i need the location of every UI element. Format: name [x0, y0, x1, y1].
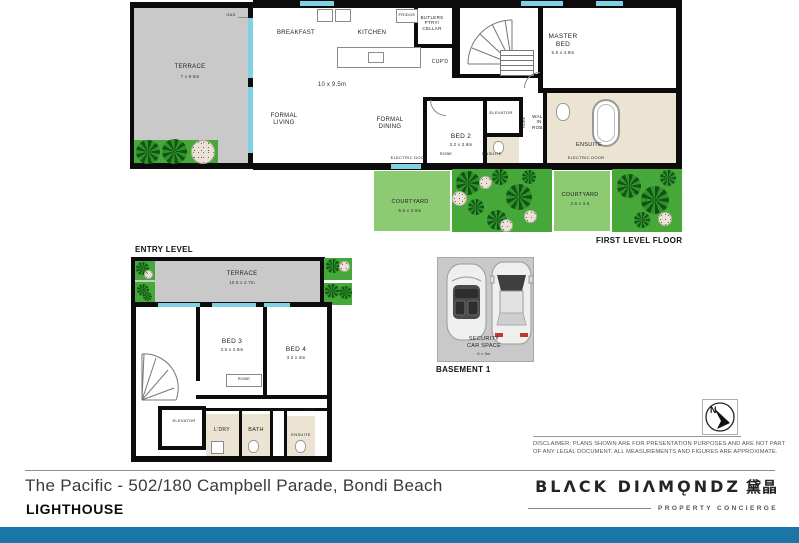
car-icon	[490, 261, 533, 345]
master-bed-dim: 5.5 x 4.8m	[551, 50, 574, 55]
car-icon	[444, 263, 489, 341]
tree-icon	[522, 170, 536, 184]
bed4-dim: 3.2 x 3m	[287, 355, 306, 360]
shrub-icon	[658, 212, 672, 226]
shrub-icon	[479, 176, 492, 189]
ensuite-label: ENSUITE	[482, 152, 501, 157]
terrace-dim: 10.5 x 2.7m	[229, 280, 255, 285]
tree-icon	[660, 170, 676, 186]
bed2-dim: 3.2 x 3.8m	[449, 142, 472, 147]
disclaimer-line1: DISCLAIMER: PLANS SHOWN ARE FOR PRESENTA…	[533, 441, 785, 449]
wall	[196, 307, 200, 381]
robe-label: ROBE	[260, 408, 271, 412]
shrub-icon	[144, 270, 153, 279]
tree-icon	[326, 259, 340, 273]
formal-living-label: FORMAL LIVING	[266, 113, 302, 127]
ensuite-label: ENSUITE	[576, 142, 602, 149]
tree-icon	[641, 186, 669, 214]
floorplan-page: { "first_level": { "caption": "FIRST LEV…	[0, 0, 799, 543]
shrub-icon	[524, 210, 537, 223]
window	[521, 1, 563, 6]
compass-north: N	[710, 405, 717, 415]
sink-icon	[368, 52, 384, 63]
wall	[196, 395, 331, 399]
bed4-label: BED 4	[286, 346, 306, 354]
tree-icon	[506, 184, 532, 210]
elevator-label: ELEVATOR	[172, 419, 195, 424]
tree-icon	[136, 140, 160, 164]
car-space-dim: 6 x 5m	[477, 351, 490, 356]
open-plan-dim: 10 x 9.5m	[318, 82, 346, 88]
brand-name: BLΛCK DIΛMǪNDZ	[535, 477, 741, 496]
elevator-label: ELEVATOR	[489, 111, 512, 116]
shrub-icon	[452, 191, 467, 206]
window	[596, 1, 623, 6]
first-level-caption: FIRST LEVEL FLOOR	[596, 236, 682, 245]
formal-dining-label: FORMAL DINING	[372, 117, 408, 131]
robe-label: ROBE	[303, 408, 314, 412]
wall	[327, 302, 332, 462]
ensuite-label: ENSUITE	[291, 433, 310, 438]
tree-icon	[325, 284, 339, 298]
footer-divider	[25, 470, 775, 471]
robe-label: ROBE	[522, 117, 526, 128]
stairs-steps	[500, 50, 534, 76]
terrace-floor	[135, 261, 320, 302]
master-bed-label: MASTER BED	[545, 33, 581, 49]
wall	[248, 8, 253, 18]
bath-label: BATH	[248, 427, 263, 434]
footer-accent-bar	[0, 527, 799, 543]
window	[158, 303, 200, 307]
robe-label: ROBE	[277, 408, 288, 412]
courtyard-dim: 2.6 x 3.6	[570, 201, 589, 206]
shrub-icon	[500, 219, 513, 232]
disclaimer-line2: OF ANY LEGAL DOCUMENT. ALL MEASUREMENTS …	[533, 449, 778, 457]
tree-icon	[143, 292, 152, 301]
toilet-icon	[556, 103, 570, 121]
wall	[676, 0, 682, 170]
basement-caption: BASEMENT 1	[436, 365, 491, 374]
tree-icon	[634, 212, 650, 228]
terrace-label: TERRACE	[175, 64, 206, 71]
robe-label: ROBE	[238, 377, 251, 382]
tagline-rule	[528, 508, 651, 509]
toilet-icon	[295, 440, 306, 453]
wall	[158, 406, 162, 450]
window	[212, 303, 256, 307]
electric-door-label: ELECTRIC DOOR	[391, 156, 428, 161]
butlers-label: BUTLERS PTRY/ CELLAR	[418, 15, 446, 31]
tree-icon	[468, 199, 484, 215]
tree-icon	[339, 286, 352, 299]
brand-tagline: PROPERTY CONCIERGE	[658, 505, 778, 512]
bed2-label: BED 2	[451, 133, 471, 141]
oven-icon	[317, 9, 333, 22]
car-space-label: SECURITY CAR SPACE	[463, 336, 505, 349]
electric-door-label: ELECTRIC DOOR	[568, 156, 605, 161]
robe-label: ROBE	[440, 152, 453, 157]
window	[391, 164, 421, 169]
wall	[423, 97, 427, 163]
window	[264, 303, 290, 307]
washer-icon	[211, 441, 224, 454]
terrace-dim: 7 x 9.5m	[181, 74, 200, 79]
spiral-stairs-icon	[136, 350, 180, 404]
wall	[248, 78, 253, 87]
tree-icon	[162, 139, 187, 164]
entry-level-caption: ENTRY LEVEL	[135, 245, 193, 254]
wall	[131, 456, 332, 462]
brand-logo: BLΛCK DIΛMǪNDZ黛晶	[528, 476, 778, 497]
wall	[248, 153, 253, 163]
toilet-icon	[248, 440, 259, 453]
property-subtitle: LIGHTHOUSE	[26, 501, 124, 517]
cupd-label: CUP'D	[432, 59, 449, 65]
bed3-dim: 3.5 x 2.8m	[220, 347, 243, 352]
window	[300, 1, 334, 6]
brand-tagline-row: PROPERTY CONCIERGE	[528, 505, 778, 512]
gas-label: GAS	[226, 13, 235, 18]
courtyard-label: COURTYARD	[391, 199, 428, 206]
oven-icon	[335, 9, 351, 22]
property-address: The Pacific - 502/180 Campbell Parade, B…	[25, 476, 443, 496]
gas-line	[238, 17, 248, 18]
bed3-label: BED 3	[222, 338, 242, 346]
wall	[487, 97, 523, 101]
wall	[270, 411, 273, 458]
wall	[263, 307, 267, 395]
fridge-label: FRIDGE	[399, 13, 416, 18]
courtyard-label: COURTYARD	[561, 192, 598, 199]
kitchen-label: KITCHEN	[358, 30, 386, 37]
tree-icon	[617, 174, 641, 198]
wall	[158, 406, 206, 410]
door-arc	[430, 100, 446, 116]
shrub-icon	[191, 140, 215, 164]
tree-icon	[492, 169, 508, 185]
courtyard-dim: 5.5 x 3.6m	[398, 208, 421, 213]
laundry-label: L'DRY	[214, 427, 230, 433]
bathtub-icon	[592, 99, 620, 147]
walk-in-robe-label: WALK IN ROBE	[530, 114, 548, 130]
breakfast-label: BREAKFAST	[277, 30, 315, 37]
terrace-label: TERRACE	[227, 271, 258, 278]
compass-icon: N	[702, 399, 738, 435]
disclaimer-divider	[533, 436, 741, 437]
wall	[158, 446, 206, 450]
shrub-icon	[339, 261, 350, 272]
brand-chinese: 黛晶	[746, 478, 778, 496]
